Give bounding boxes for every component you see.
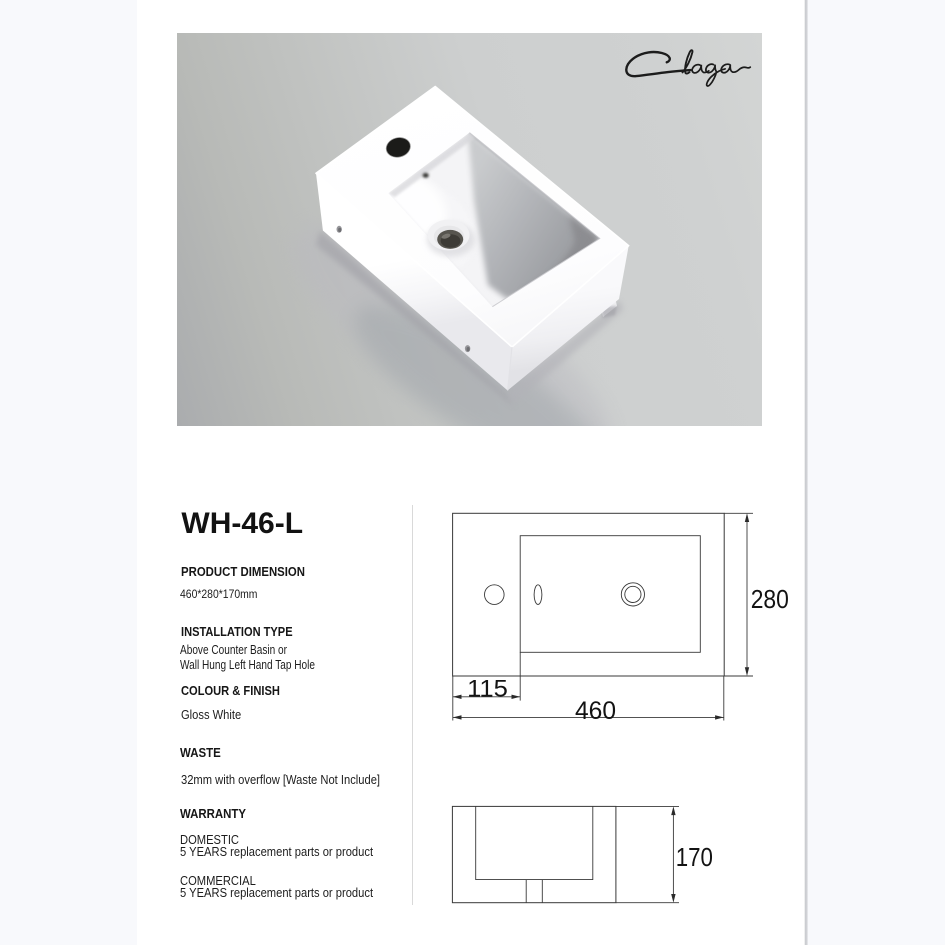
svg-text:115: 115 <box>467 676 508 703</box>
svg-text:280: 280 <box>751 584 789 614</box>
svg-text:170: 170 <box>676 842 713 872</box>
svg-text:460: 460 <box>575 697 616 725</box>
